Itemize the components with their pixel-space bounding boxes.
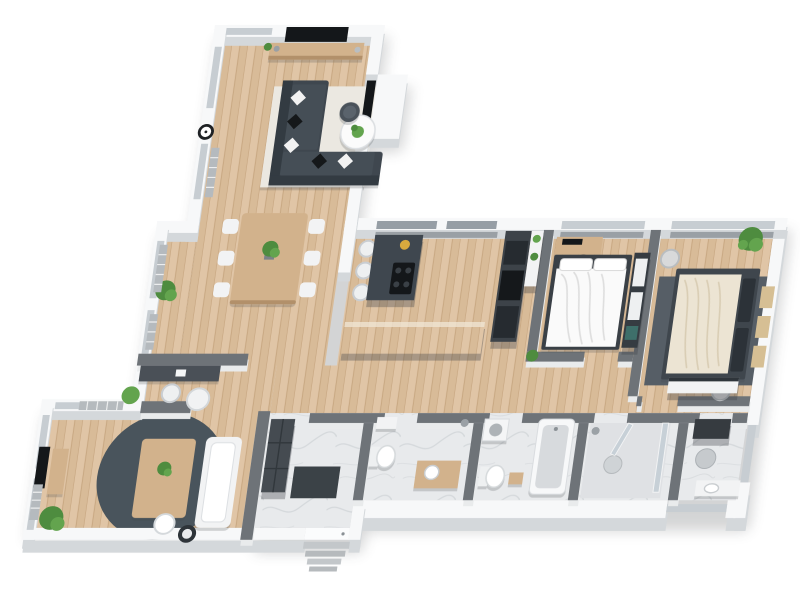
- tv-screen: [285, 27, 349, 42]
- hall-door-mat: [290, 467, 340, 499]
- iwall-corr-5: [732, 413, 748, 423]
- bed1-monitor: [562, 239, 583, 245]
- bed1: [541, 255, 632, 350]
- counter-appliance-2: [498, 271, 524, 301]
- kitchen-peninsula-edge: [344, 322, 485, 327]
- window-bedroom2: [671, 221, 775, 229]
- iwall-corr-1: [309, 413, 385, 423]
- iwall-corr-2: [417, 413, 490, 423]
- iwall-family-top: [140, 401, 192, 413]
- window-bedroom1: [561, 221, 645, 229]
- nook-desk-paper: [175, 370, 186, 377]
- room-shower: [580, 423, 671, 498]
- island-cooktop: [389, 263, 415, 295]
- bath2-stool: [508, 472, 524, 484]
- window-kitchen-1: [376, 221, 437, 229]
- iwall-nook-divider: [137, 354, 249, 366]
- exterior-steps: [300, 542, 350, 572]
- dining-table-edge: [230, 300, 297, 304]
- bed2-dresser-top: [669, 377, 740, 381]
- window-kitchen-2: [446, 221, 497, 229]
- window-bath-bottom: [666, 504, 727, 512]
- bath2-washer: [482, 419, 509, 441]
- wall-bath-bottom: [357, 500, 668, 518]
- iwall-bed1-bottom-b: [617, 352, 633, 362]
- plan-group: [18, 25, 800, 571]
- counter-appliance-3: [493, 306, 519, 338]
- family-table: [131, 439, 196, 518]
- counter-appliance-1: [503, 241, 528, 265]
- iwall-corr-4: [627, 413, 700, 423]
- floor-plan-svg: [0, 0, 800, 600]
- bed2: [661, 269, 761, 380]
- tv-console-front: [268, 56, 363, 60]
- bath3-basin: [704, 484, 719, 493]
- window-living-top: [226, 28, 273, 35]
- bath3-ceiling-vent: [692, 419, 731, 439]
- bath1-wall-sink: [376, 417, 398, 429]
- floor-plan-render: [0, 0, 800, 600]
- bed1-wardrobe-shelf: [624, 326, 638, 340]
